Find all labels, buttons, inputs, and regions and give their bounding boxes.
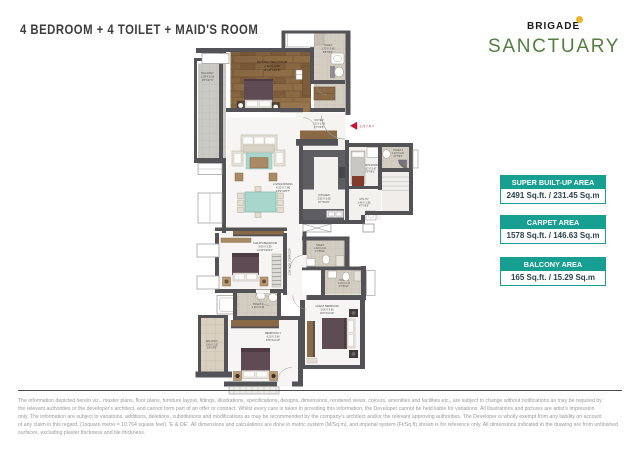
svg-text:ENTRY: ENTRY [360, 124, 375, 128]
svg-text:1.72 X 2.45: 1.72 X 2.45 [321, 46, 335, 50]
svg-text:9'7"X10'0": 9'7"X10'0" [318, 200, 330, 204]
svg-text:TOILET: TOILET [323, 43, 332, 47]
svg-text:CHILD'S BEDROOM: CHILD'S BEDROOM [253, 241, 277, 245]
svg-text:3.60 X 3.30: 3.60 X 3.30 [258, 244, 272, 248]
svg-text:10'0"X11'10": 10'0"X11'10" [320, 311, 335, 315]
svg-text:1.38 X 5.18: 1.38 X 5.18 [201, 74, 215, 78]
svg-text:4.20 X 3.60: 4.20 X 3.60 [266, 334, 280, 338]
svg-text:13'9"X11'10": 13'9"X11'10" [266, 338, 281, 342]
svg-text:11'10"X10'10": 11'10"X10'10" [257, 248, 273, 252]
svg-text:1.40 X 2.10: 1.40 X 2.10 [314, 248, 326, 250]
svg-text:KITCHEN: KITCHEN [318, 193, 330, 197]
svg-text:6'6"X9'9": 6'6"X9'9" [207, 347, 217, 350]
svg-text:TOILET: TOILET [316, 245, 325, 247]
svg-text:BEDROOM 1: BEDROOM 1 [265, 331, 281, 335]
svg-text:2.92 X 3.05: 2.92 X 3.05 [317, 196, 331, 200]
svg-text:4'7"X6'5": 4'7"X6'5" [359, 205, 369, 208]
svg-text:1.40 X 2.10: 1.40 X 2.10 [252, 306, 265, 309]
svg-text:1.40 X 1.91: 1.40 X 1.91 [392, 153, 404, 155]
svg-text:TOILET 3: TOILET 3 [393, 150, 404, 152]
svg-text:1.40 X 2.10: 1.40 X 2.10 [338, 283, 350, 285]
svg-text:6'0"X8'1": 6'0"X8'1" [365, 171, 375, 174]
svg-text:4'7"X6'3": 4'7"X6'3" [393, 156, 402, 158]
svg-text:11'10"X13'9": 11'10"X13'9" [263, 68, 280, 72]
svg-text:3.06 X 3.60: 3.06 X 3.60 [320, 307, 334, 311]
svg-text:BALCONY: BALCONY [201, 71, 214, 75]
svg-text:GUEST BEDROOM: GUEST BEDROOM [315, 304, 338, 308]
svg-text:4'6"X17'0": 4'6"X17'0" [202, 78, 214, 82]
svg-text:6'7"X3'5": 6'7"X3'5" [314, 125, 324, 129]
svg-text:4'7"X6'11": 4'7"X6'11" [339, 286, 349, 288]
svg-text:1.2M WIDE CORRIDOR: 1.2M WIDE CORRIDOR [289, 248, 292, 275]
svg-text:13'9"X25'7": 13'9"X25'7" [276, 189, 290, 193]
svg-text:4'7"X6'11": 4'7"X6'11" [315, 251, 325, 253]
